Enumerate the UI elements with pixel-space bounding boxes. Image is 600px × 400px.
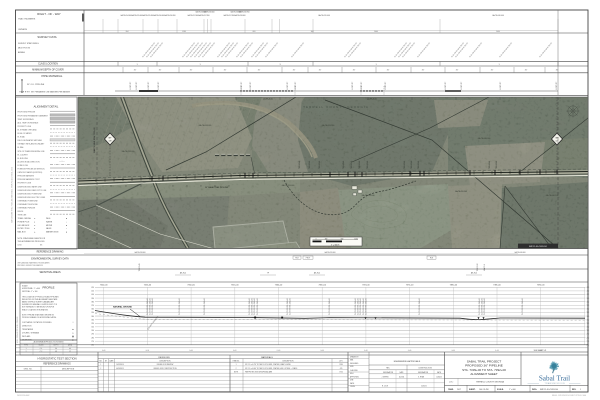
svg-text:0.720" W.T.: 0.720" W.T. (500, 81, 502, 90)
svg-text:0.720" W.T.: 0.720" W.T. (461, 81, 463, 90)
svg-text:600: 600 (341, 238, 344, 240)
svg-text:7385+00: 7385+00 (493, 284, 500, 286)
svg-text:SENSITIVE AREAS: SENSITIVE AREAS (39, 271, 61, 274)
svg-text:(4-089-A-02): (4-089-A-02) (367, 98, 377, 101)
svg-text:GA-TE-059.000: GA-TE-059.000 (318, 14, 330, 17)
svg-text:11/24/14: 11/24/14 (399, 376, 405, 378)
svg-text:SHEET:: SHEET: (469, 389, 476, 391)
svg-text:SCALE:: SCALE: (22, 285, 29, 288)
svg-text:0.720" W.T.: 0.720" W.T. (130, 81, 132, 90)
svg-text:MAIL BOX: MAIL BOX (18, 231, 27, 234)
svg-text:140 OF 458: 140 OF 458 (479, 389, 489, 391)
svg-text:METER: METER (46, 225, 53, 227)
svg-text:○: ○ (66, 228, 67, 230)
svg-text:ALIGNMENT DETAIL: ALIGNMENT DETAIL (34, 105, 59, 109)
svg-text:0+00: 0+00 (102, 350, 106, 352)
svg-text:FILTER / POLE: FILTER / POLE (18, 228, 31, 230)
svg-text:NOTE: NOTE (234, 371, 238, 373)
svg-text:TRACT NUMBERS: TRACT NUMBERS (18, 18, 36, 21)
svg-text:370: 370 (91, 305, 94, 307)
svg-text:DESCRIPTION: DESCRIPTION (283, 360, 295, 362)
svg-text:7365+00: 7365+00 (318, 284, 325, 286)
svg-text:GA-TE-058.000: GA-TE-058.000 (122, 150, 135, 153)
svg-text:350: 350 (91, 312, 94, 314)
svg-text:0.720" W.T.: 0.720" W.T. (148, 81, 150, 90)
svg-text:290: 290 (91, 334, 94, 336)
svg-text:2: 2 (100, 368, 101, 370)
svg-text:1200: 1200 (354, 238, 358, 240)
svg-text:04/20/2015: 04/20/2015 (116, 368, 124, 370)
svg-text:UNDERGROUND FIBER OPTIC LINE: UNDERGROUND FIBER OPTIC LINE (18, 190, 48, 192)
svg-text:139: 139 (109, 141, 112, 143)
svg-text:PROPOSED PIPELINE: PROPOSED PIPELINE (18, 112, 37, 114)
svg-text:FOREIGN PIPELINE (IN SERVICE): FOREIGN PIPELINE (IN SERVICE) (18, 169, 45, 171)
svg-text:470: 470 (340, 368, 343, 370)
svg-text:270: 270 (91, 341, 94, 343)
svg-text:DWG:: DWG: (532, 389, 537, 391)
svg-text:58-BL-7339+00 TO 58-BL-7392+00: 58-BL-7339+00 TO 58-BL-7392+00 (17, 317, 19, 344)
svg-text:AS-W-4: AS-W-4 (180, 272, 186, 275)
svg-text:CATHODIC MARKS (EXISTING): CATHODIC MARKS (EXISTING) (18, 171, 43, 174)
svg-text:PIPE MATERIAL: PIPE MATERIAL (42, 74, 63, 78)
svg-text:WELL: WELL (46, 218, 51, 220)
svg-text:VALVE: VALVE (46, 227, 52, 230)
svg-text:7350+00: 7350+00 (187, 284, 194, 286)
svg-text:ISSUED FOR CONSTRUCTION: ISSUED FOR CONSTRUCTION (153, 368, 177, 370)
svg-text:370: 370 (587, 305, 590, 307)
svg-text:MILE POSTS: MILE POSTS (18, 48, 31, 50)
svg-text:TREE LINE: TREE LINE (18, 215, 28, 217)
svg-text:NOTE: SPACES AND SHEETS FO: NOTE: SPACES AND SHEETS FOR (18, 237, 46, 240)
svg-text:48: 48 (55, 351, 57, 353)
svg-text:1: 1 (100, 364, 101, 366)
svg-text:SITE OF TRANSCENDENTAL LINE: SITE OF TRANSCENDENTAL LINE (18, 150, 46, 153)
svg-text:5750: 5750 (339, 371, 343, 373)
svg-text:MILEPOSTS: MILEPOSTS (22, 340, 33, 342)
svg-text:GA-TE-059.500: GA-TE-059.500 (455, 190, 467, 193)
svg-text:DWG. NO.: DWG. NO. (24, 368, 33, 370)
svg-text:AS-W-4: AS-W-4 (314, 272, 320, 275)
svg-text:330: 330 (91, 319, 94, 321)
svg-text:300: 300 (325, 238, 328, 240)
svg-text:20151113-4002: 20151113-4002 (17, 395, 29, 397)
svg-text:T R A N S M I S S I O N: T R A N S M I S S I O N (545, 382, 566, 385)
svg-text:10/31/2014: 10/31/2014 (116, 364, 124, 366)
svg-text:310: 310 (91, 327, 94, 329)
svg-text:ACCESS ROAD DIRECTION: ACCESS ROAD DIRECTION (18, 160, 41, 163)
svg-text:■: ■ (66, 218, 67, 220)
svg-text:2640: 2640 (374, 31, 378, 33)
svg-text:CULTIVATED / ROTATION CROSSING: CULTIVATED / ROTATION CROSSING (22, 321, 52, 324)
svg-text:OVERHEAD TELEPHONE: OVERHEAD TELEPHONE (18, 203, 39, 206)
svg-text:36": 36" (422, 70, 425, 72)
svg-text:36": 36" (134, 70, 137, 72)
svg-text:UNDERGROUND WATER LINE: UNDERGROUND WATER LINE (18, 185, 43, 188)
svg-text:420: 420 (91, 287, 94, 289)
svg-text:36" O.D. PIPELINE: 36" O.D. PIPELINE (27, 84, 45, 86)
svg-text:36: 36 (55, 348, 57, 350)
svg-text:YEAR:: YEAR: (448, 388, 454, 391)
svg-text:AREAS: AREAS (18, 51, 25, 54)
svg-text:11: 11 (140, 186, 142, 188)
svg-text:1289: 1289 (182, 31, 186, 33)
svg-text:7370+00: 7370+00 (362, 284, 369, 286)
svg-text:36": 36" (224, 70, 227, 72)
svg-text:REV:: REV: (572, 389, 577, 391)
svg-text:MARKER SIGN: MARKER SIGN (46, 231, 59, 234)
svg-text:EDGE OF WATER: EDGE OF WATER (18, 132, 33, 135)
svg-text:BY: BY (105, 360, 107, 362)
svg-text:11: 11 (110, 186, 112, 188)
svg-text:820: 820 (253, 31, 256, 33)
svg-text:420: 420 (587, 287, 590, 289)
svg-text:12/04/14: 12/04/14 (436, 376, 442, 378)
svg-text:7390+00: 7390+00 (537, 284, 544, 286)
svg-text:EL ROAD: EL ROAD (18, 136, 26, 139)
svg-text:CONSTRUCTION: CONSTRUCTION (418, 368, 432, 370)
svg-text:R. COLE: R. COLE (382, 385, 388, 387)
svg-text:DESCRIPTION: DESCRIPTION (62, 368, 75, 370)
svg-text:7360+00: 7360+00 (275, 284, 282, 286)
svg-text:●: ● (34, 228, 35, 230)
svg-text:AS-W-4: AS-W-4 (471, 272, 477, 275)
svg-text:36": 36" (525, 70, 528, 72)
svg-text:PROPERTY LINE: PROPERTY LINE (18, 126, 32, 128)
svg-text:EL STREAM / WETLAND: EL STREAM / WETLAND (18, 128, 38, 131)
svg-text:SURVEY STATIONING: SURVEY STATIONING (18, 42, 39, 45)
svg-text:0+00: 0+00 (277, 350, 281, 352)
svg-text:5280: 5280 (339, 364, 343, 366)
svg-text:0.720" W.T.: 0.720" W.T. (556, 81, 558, 90)
svg-text:SMP-PL-DG-70181-141: SMP-PL-DG-70181-141 (529, 246, 547, 248)
svg-text:11/4/14: 11/4/14 (350, 386, 355, 388)
svg-text:MATERIALS: MATERIALS (261, 356, 273, 359)
svg-text:1.2: 1.2 (69, 351, 71, 353)
svg-text:36": 36" (456, 70, 459, 72)
svg-text:NOT INTENDED TO BE RELIED UPON: NOT INTENDED TO BE RELIED UPON FOR (22, 307, 55, 309)
svg-text:0+00: 0+00 (321, 350, 325, 352)
svg-text:ENVIRONMENTAL SURVEY DATA: ENVIRONMENTAL SURVEY DATA (31, 258, 69, 261)
svg-text:—○—: —○— (59, 160, 66, 163)
svg-text:FILE: FILE (430, 258, 433, 260)
svg-text:PROFILE: PROFILE (43, 285, 55, 289)
svg-text:LOC:: LOC: (449, 382, 454, 384)
svg-text:1" = 600 ft: 1" = 600 ft (331, 243, 340, 246)
svg-text:DITCHES / STREAMS: DITCHES / STREAMS (22, 332, 40, 335)
svg-text:FIELD DELINEATED WETLAND: FIELD DELINEATED WETLAND (18, 139, 43, 142)
svg-text:DEPTH: DEPTH (53, 345, 58, 347)
svg-text:7340+00: 7340+00 (100, 284, 107, 286)
svg-text:PIPELINE MARKERS / TEST: PIPELINE MARKERS / TEST (18, 178, 40, 181)
svg-text:ADD. TEMP. WORKSPACE: ADD. TEMP. WORKSPACE (18, 121, 40, 124)
svg-text:HORIZONTAL: 1" = 600: HORIZONTAL: 1" = 600 (22, 287, 40, 290)
svg-text:340: 340 (587, 316, 590, 318)
svg-text:CLASS LOCATION: CLASS LOCATION (38, 63, 58, 66)
svg-text:■: ■ (66, 225, 67, 227)
svg-text:360: 360 (587, 309, 590, 311)
svg-text:2430: 2430 (496, 31, 500, 33)
svg-text:390: 390 (91, 298, 94, 300)
svg-text:300: 300 (91, 330, 94, 332)
svg-text:GA-TE-059.000: GA-TE-059.000 (322, 124, 335, 127)
svg-text:0+00: 0+00 (408, 350, 412, 352)
svg-text:EL RAIL: EL RAIL (18, 146, 24, 149)
svg-text:0.720" W.T.: 0.720" W.T. (158, 81, 160, 90)
svg-text:THIS ALTERNATIONS PRODUCED: THIS ALTERNATIONS PRODUCED (18, 240, 46, 243)
svg-text:DESCRIPTION: DESCRIPTION (160, 360, 172, 362)
svg-text:REFERENCE DRAWING: REFERENCE DRAWING (37, 251, 64, 254)
svg-text:0.720" W.T.: 0.720" W.T. (287, 81, 289, 90)
svg-text:ALIGNMENT SHEET: ALIGNMENT SHEET (470, 372, 497, 376)
svg-text:ENGINEERING APPROVALS: ENGINEERING APPROVALS (394, 360, 421, 363)
svg-text:GA-TE-058.000: GA-TE-058.000 (199, 124, 212, 127)
svg-text:PROT: PROT (306, 258, 310, 260)
svg-text:EL CULVERT: EL CULVERT (18, 154, 28, 156)
svg-text:GA-TE-060.000: GA-TE-060.000 (478, 137, 491, 140)
svg-text:360: 360 (91, 309, 94, 311)
svg-text:0+00: 0+00 (452, 350, 456, 352)
svg-text:0+00: 0+00 (539, 350, 543, 352)
svg-text:0.720" W.T.: 0.720" W.T. (352, 81, 354, 90)
svg-text:TRIB 59-B2: TRIB 59-B2 (477, 263, 479, 271)
svg-text:SURVEY DATA: SURVEY DATA (37, 35, 56, 39)
svg-text:REVISIONS: REVISIONS (158, 357, 170, 359)
svg-text:J. MYERS: J. MYERS (382, 376, 389, 378)
svg-text:ISSUED FOR REVIEW: ISSUED FOR REVIEW (157, 364, 174, 366)
svg-text:400: 400 (91, 294, 94, 296)
svg-text:410: 410 (587, 291, 590, 293)
svg-text:11: 11 (228, 186, 230, 188)
svg-text:GA-TE-060.000: GA-TE-060.000 (492, 14, 504, 17)
svg-text:MINIMUM DEPTH OF COVER: MINIMUM DEPTH OF COVER (32, 69, 64, 71)
svg-text:PIPELINE MARKERS: PIPELINE MARKERS (18, 175, 35, 178)
svg-text:380: 380 (91, 301, 94, 303)
svg-text:264: 264 (126, 31, 129, 33)
svg-text:GA-TE-060.100: GA-TE-060.100 (546, 194, 559, 197)
svg-text:36": 36" (258, 70, 261, 72)
svg-text:11: 11 (172, 186, 174, 188)
svg-text:280: 280 (91, 337, 94, 339)
svg-text:0.720" W.T.: 0.720" W.T. (250, 81, 252, 90)
svg-text:ITEM NO.: ITEM NO. (232, 360, 240, 362)
svg-text:36": 36" (491, 70, 494, 72)
svg-text:REFERENCE DRAWINGS: REFERENCE DRAWINGS (43, 363, 71, 366)
svg-text:0+00: 0+00 (233, 350, 237, 352)
svg-text:270: 270 (587, 341, 590, 343)
svg-text:▲: ▲ (72, 328, 74, 331)
svg-text:GA-TE-059.100: GA-TE-059.100 (362, 194, 375, 197)
svg-text:MATCH LINE STA. 7339+00 (SEE: MATCH LINE STA. 7339+00 (SEE DWG. SMP-PL… (11, 167, 14, 223)
svg-text:TERRELL COUNTY GEORGIA: TERRELL COUNTY GEORGIA (476, 381, 504, 384)
svg-text:7345+00: 7345+00 (144, 284, 151, 286)
svg-text:390: 390 (587, 298, 590, 300)
svg-text:320: 320 (91, 323, 94, 325)
svg-text:36": 36" (353, 70, 356, 72)
svg-text:TRIBUTARIES: TRIBUTARIES (22, 328, 34, 331)
svg-text:380: 380 (587, 301, 590, 303)
svg-text:0+00: 0+00 (189, 350, 193, 352)
svg-text:Sabal Trail: Sabal Trail (539, 374, 570, 382)
svg-text:340: 340 (91, 316, 94, 318)
svg-text:310: 310 (587, 327, 590, 329)
svg-text:DESIGNED: DESIGNED (350, 363, 359, 365)
svg-text:SCALE:: SCALE: (497, 388, 504, 391)
svg-text:0.720" W.T.: 0.720" W.T. (445, 81, 447, 90)
svg-text:TREES / BRUSH: TREES / BRUSH (18, 218, 32, 220)
svg-text:164: 164 (311, 31, 314, 33)
svg-text:0+00: 0+00 (364, 350, 368, 352)
svg-text:DIRECTION: DIRECTION (22, 326, 32, 328)
svg-text:7375+00: 7375+00 (406, 284, 413, 286)
svg-text:POWER POLE: POWER POLE (18, 221, 31, 223)
svg-text:GA-TE-059.000: GA-TE-059.000 (282, 184, 295, 187)
svg-text:7380+00: 7380+00 (450, 284, 457, 286)
svg-text:●: ● (34, 221, 35, 223)
svg-text:36": 36" (319, 70, 322, 72)
svg-text:OWNERS: OWNERS (18, 29, 28, 31)
svg-text:GRS: GRS (350, 366, 353, 368)
svg-text:FILE: FILE (295, 258, 298, 260)
svg-text:C-2: C-2 (40, 351, 43, 353)
svg-text:36": 36" (159, 70, 162, 72)
svg-text:11: 11 (214, 186, 216, 188)
svg-text:MATCH LINE STA. 7339+00: MATCH LINE STA. 7339+00 (93, 127, 96, 153)
svg-text:TYPE: TYPE (24, 345, 28, 347)
svg-text:(4-089-A-02): (4-089-A-02) (263, 98, 273, 101)
svg-text:36″ SABAL TRAIL PIPELINE: 36″ SABAL TRAIL PIPELINE (205, 186, 229, 189)
svg-text:▩: ▩ (72, 335, 74, 338)
svg-text:C-1: C-1 (40, 348, 43, 350)
svg-text:GUY ANCHOR: GUY ANCHOR (18, 224, 30, 227)
svg-text:WETLAND: WETLAND (22, 335, 31, 338)
svg-text:0.720" W.T.: 0.720" W.T. (385, 81, 387, 90)
svg-text:VERTICAL: 1" = 100: VERTICAL: 1" = 100 (22, 290, 37, 293)
svg-text:PROPOSED PERMANENT EASEMENT: PROPOSED PERMANENT EASEMENT (18, 114, 48, 117)
svg-text:350: 350 (587, 312, 590, 314)
svg-text:FORECLOSE: FORECLOSE (18, 165, 29, 167)
svg-text:HYDROSTATIC TEST SECTION: HYDROSTATIC TEST SECTION (37, 356, 76, 360)
svg-text:36": 36" (190, 70, 193, 72)
svg-text:UNDERGROUND ELECTRIC LINES: UNDERGROUND ELECTRIC LINES (18, 197, 47, 199)
svg-text:300: 300 (587, 330, 590, 332)
svg-text:400: 400 (587, 294, 590, 296)
svg-text:0+00: 0+00 (495, 350, 499, 352)
svg-text:KBB: KBB (350, 359, 353, 361)
svg-text:PROPERTY LINE: PROPERTY LINE (18, 183, 32, 185)
svg-text:0.4: 0.4 (69, 348, 71, 350)
svg-text:WATER: WATER (46, 220, 53, 223)
svg-text:290: 290 (587, 334, 590, 336)
svg-text:UNDERGROUND POWERLINE: UNDERGROUND POWERLINE (18, 193, 43, 195)
svg-text:280: 280 (587, 337, 590, 339)
svg-text:0.720" W.T.: 0.720" W.T. (136, 81, 138, 90)
svg-text:SET PERMANENT LINE MARKERS PER: SET PERMANENT LINE MARKERS PER MARKER (31, 91, 71, 94)
svg-text:○: ○ (66, 221, 67, 223)
svg-text:FENCE: FENCE (18, 211, 25, 213)
svg-text:EL BUILDING: EL BUILDING (18, 158, 29, 160)
svg-text:11: 11 (186, 186, 188, 188)
svg-text:320: 320 (587, 323, 590, 325)
svg-text:11: 11 (200, 186, 202, 188)
svg-text:■: ■ (66, 232, 67, 234)
svg-text:FILED: 11/13/2015 DOCKET CP15: FILED: 11/13/2015 DOCKET CP15-17-000 (552, 395, 586, 397)
svg-text:WW-59-4: WW-59-4 (484, 264, 486, 270)
svg-text:2017: 2017 (457, 389, 461, 391)
svg-text:04/21/15: 04/21/15 (421, 385, 427, 387)
svg-text:CHECKED: CHECKED (350, 370, 359, 372)
svg-text:36": 36" (293, 70, 296, 72)
svg-text:OVERHEAD POWERLINE: OVERHEAD POWERLINE (18, 199, 39, 202)
svg-text:36": 36" (556, 70, 559, 72)
svg-text:36": 36" (387, 70, 390, 72)
svg-text:410: 410 (91, 291, 94, 293)
svg-text:STREAM / WETLAND BOUNDARY: STREAM / WETLAND BOUNDARY (18, 143, 46, 146)
svg-text:SMP-PL-DG-70181-140: SMP-PL-DG-70181-140 (540, 389, 558, 391)
svg-text:330: 330 (587, 319, 590, 321)
svg-text:1: 1 (580, 389, 581, 391)
svg-text:1" = 600: 1" = 600 (509, 389, 516, 391)
svg-text:NATURAL GROUND: NATURAL GROUND (113, 306, 132, 309)
svg-text:TEMP. WORKSPACE: TEMP. WORKSPACE (18, 118, 35, 121)
svg-text:RIGHT - OF - WAY: RIGHT - OF - WAY (37, 12, 61, 16)
svg-text:TERRELL COUNTY GEORGIA: TERRELL COUNTY GEORGIA (303, 105, 369, 109)
svg-text:OVERHEAD PWRLINE: OVERHEAD PWRLINE (18, 207, 37, 210)
svg-text:0+00: 0+00 (146, 350, 150, 352)
svg-text:11: 11 (125, 186, 127, 188)
svg-text:7355+00: 7355+00 (231, 284, 238, 286)
